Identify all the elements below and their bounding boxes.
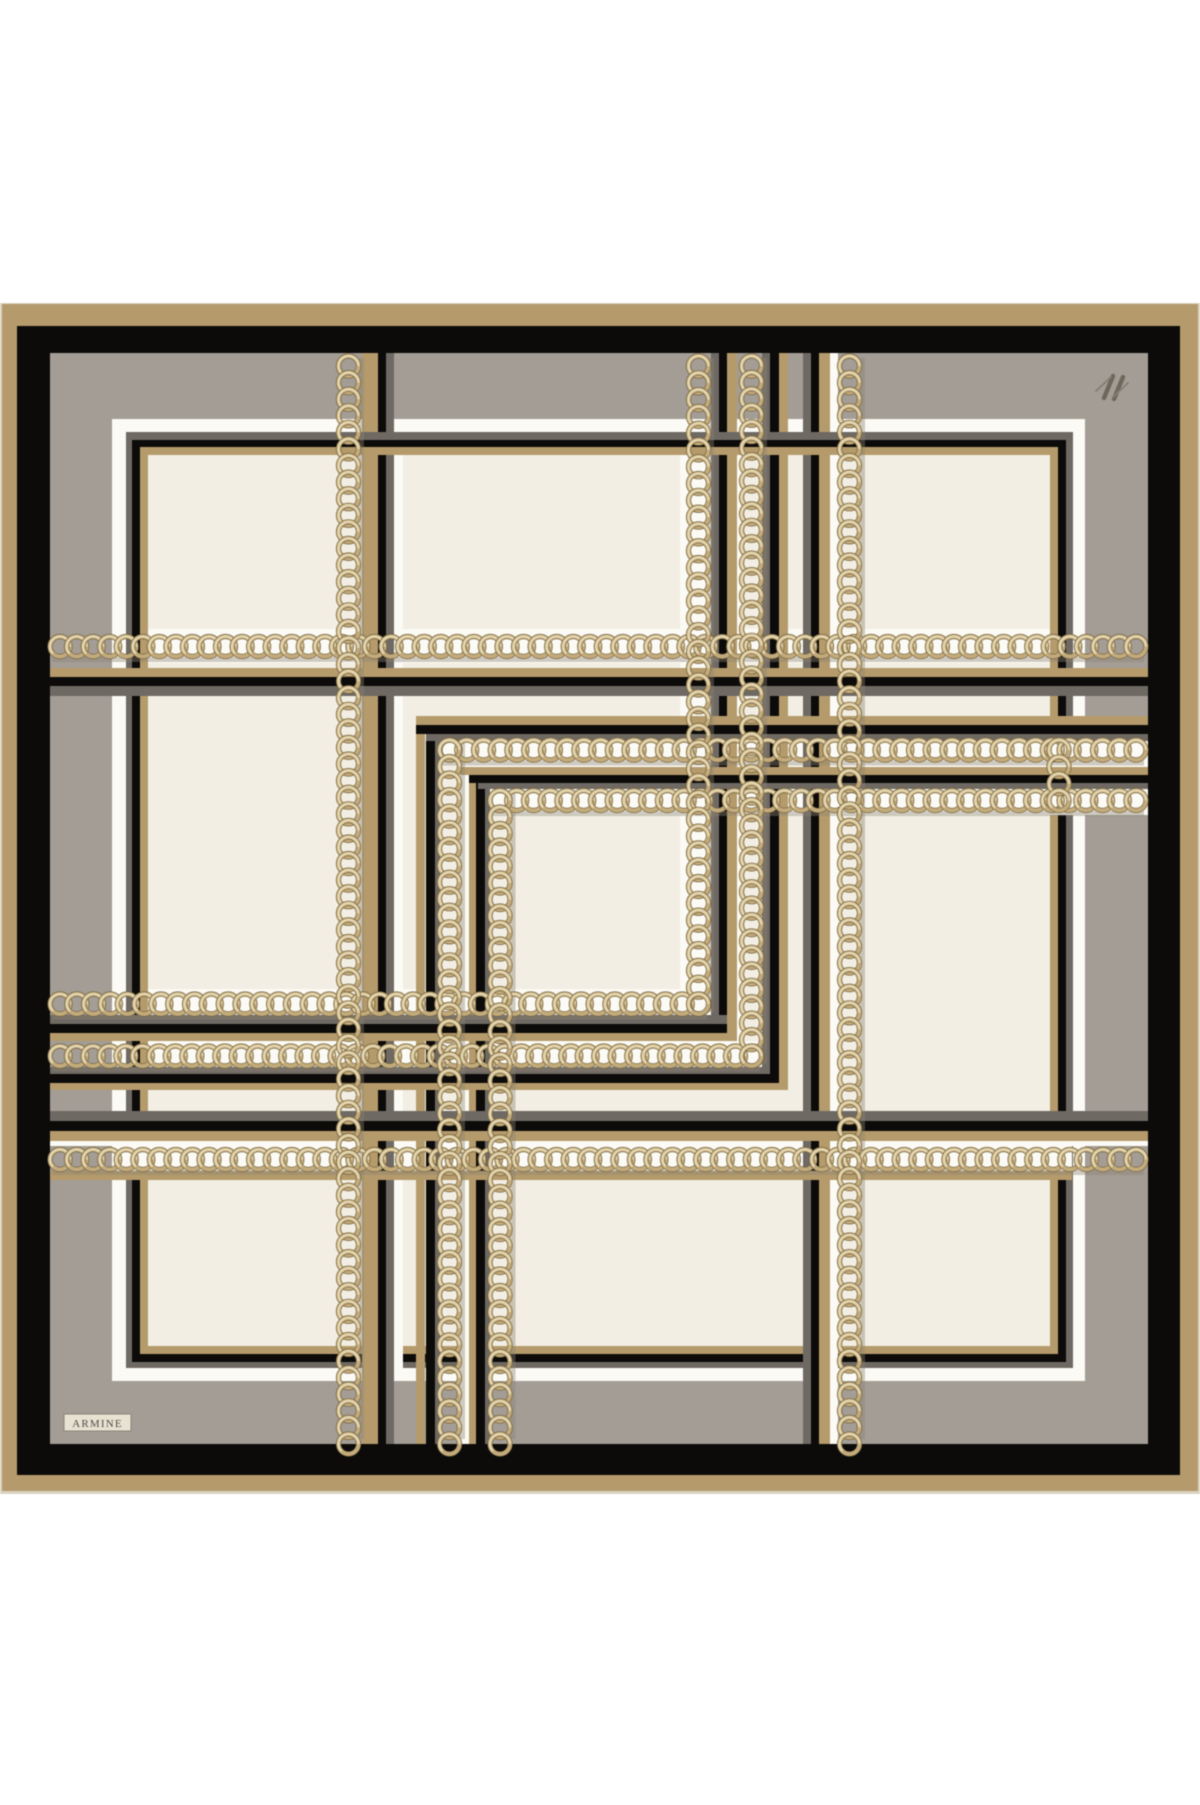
svg-text:ARMINE: ARMINE (72, 1418, 123, 1430)
